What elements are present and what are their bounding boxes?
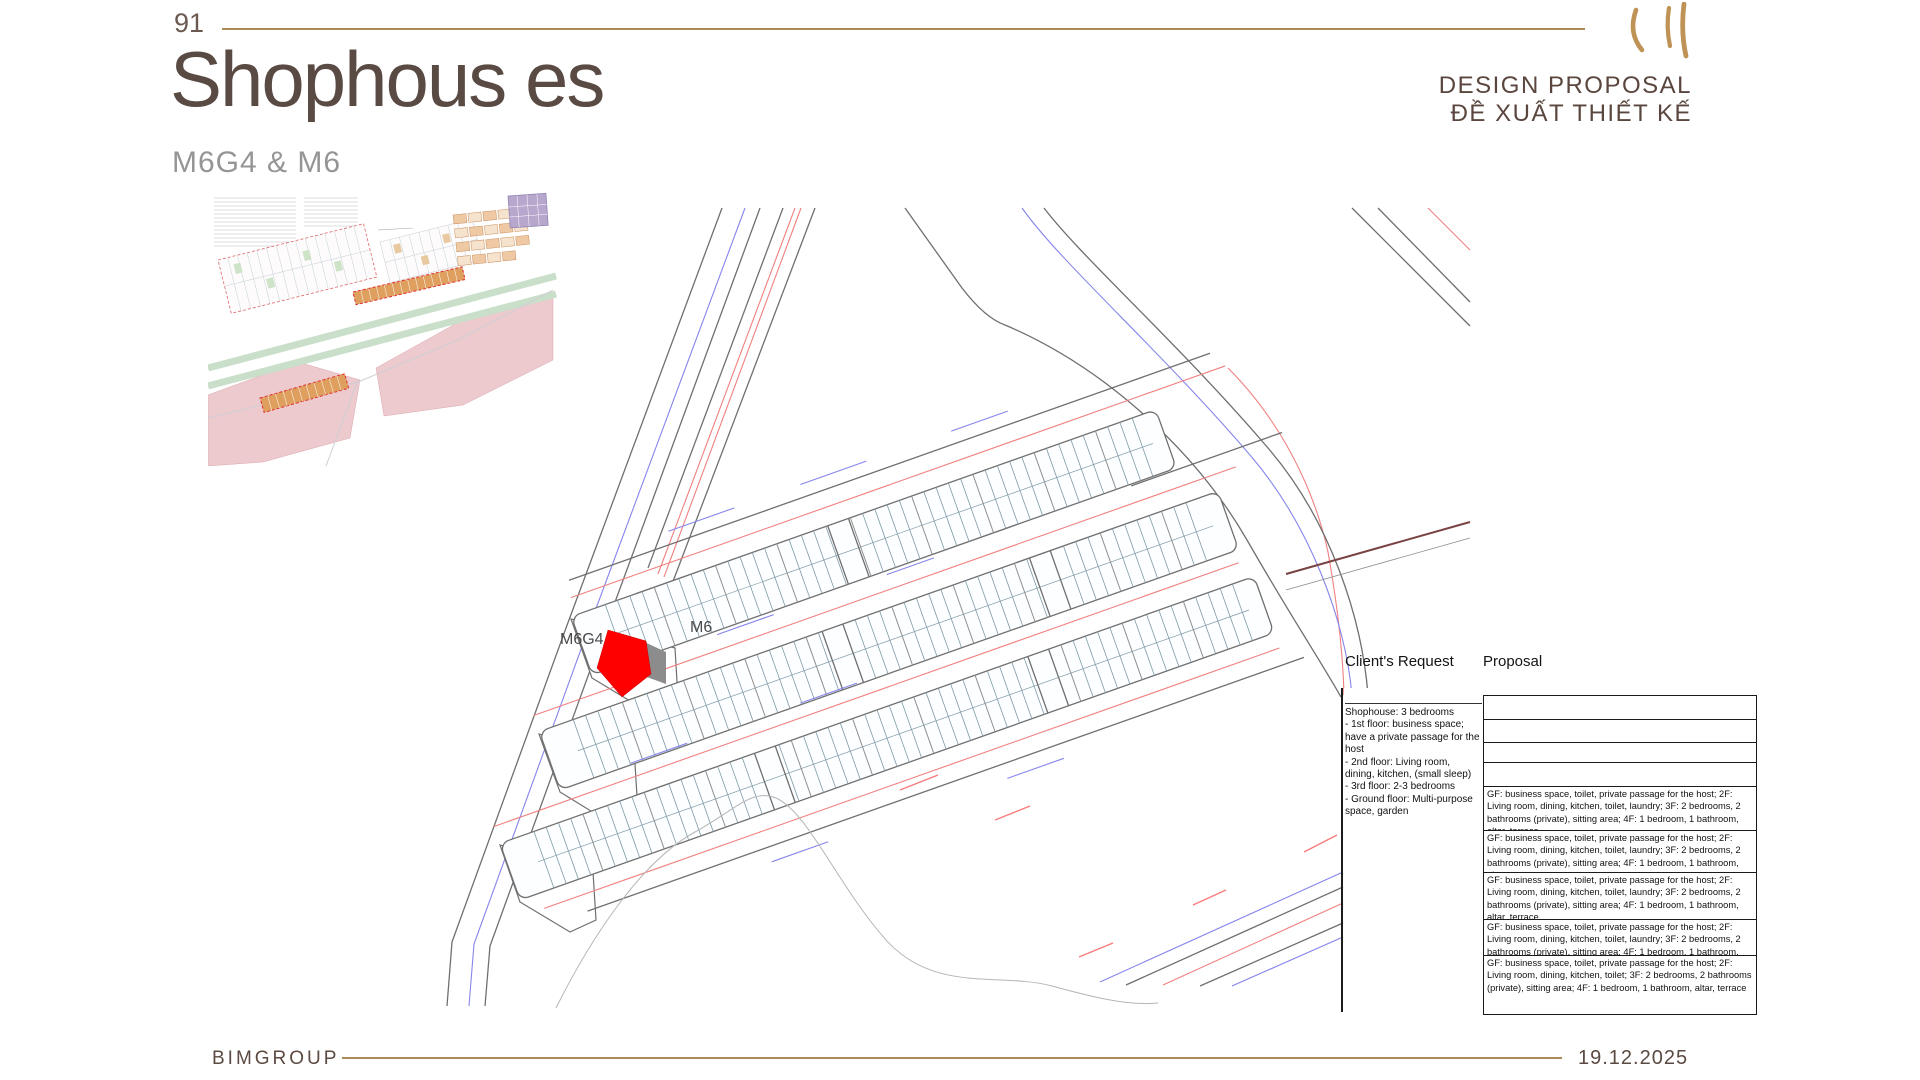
plot-label-m6: M6 (690, 619, 712, 636)
company-name: BIMGROUP (212, 1048, 339, 1070)
road-southeast-bundle (1100, 872, 1343, 986)
proposal-table-row (1484, 743, 1756, 763)
proposal-table-row (1484, 720, 1756, 743)
client-request-header: Client's Request (1345, 653, 1454, 670)
date-label: 19.12.2025 (1578, 1047, 1688, 1070)
road-northeast (1286, 208, 1470, 590)
proposal-header: Proposal (1483, 653, 1542, 670)
boundary-line-brown (1286, 522, 1470, 574)
proposal-table-row (1484, 696, 1756, 720)
footer-divider-line (342, 1057, 1562, 1059)
proposal-table-row: GF: business space, toilet, private pass… (1484, 956, 1756, 1014)
proposal-table-row: GF: business space, toilet, private pass… (1484, 787, 1756, 831)
red-dash-marks (900, 775, 1337, 957)
slide-page: 91 Shophous es M6G4 & M6 DESIGN PROPOSAL… (0, 0, 1920, 1080)
client-request-text: Shophouse: 3 bedrooms - 1st floor: busin… (1345, 703, 1482, 819)
proposal-table-row (1484, 763, 1756, 787)
road-red-center (648, 208, 815, 584)
panel-divider-line (1341, 688, 1343, 1012)
proposal-table-row: GF: business space, toilet, private pass… (1484, 873, 1756, 920)
plot-label-m6g4: M6G4 (560, 631, 604, 648)
proposal-table: GF: business space, toilet, private pass… (1483, 695, 1757, 1015)
proposal-table-row: GF: business space, toilet, private pass… (1484, 920, 1756, 956)
proposal-table-row: GF: business space, toilet, private pass… (1484, 831, 1756, 873)
